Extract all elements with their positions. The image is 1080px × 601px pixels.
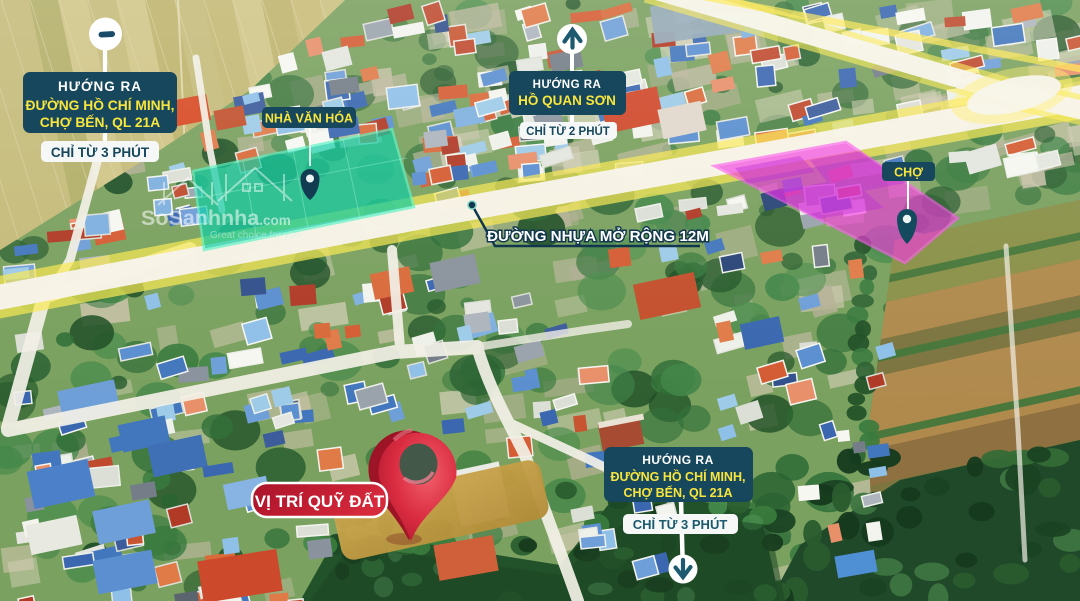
svg-text:CHỢ: CHỢ bbox=[894, 166, 923, 180]
svg-text:CHỈ TỪ 2 PHÚT: CHỈ TỪ 2 PHÚT bbox=[526, 125, 610, 138]
svg-text:CHỢ BẾN, QL 21A: CHỢ BẾN, QL 21A bbox=[623, 485, 732, 500]
svg-text:NHÀ VĂN HÓA: NHÀ VĂN HÓA bbox=[265, 111, 353, 126]
svg-text:ĐƯỜNG HỒ CHÍ MINH,: ĐƯỜNG HỒ CHÍ MINH, bbox=[26, 96, 175, 113]
svg-text:HƯỚNG RA: HƯỚNG RA bbox=[58, 79, 142, 94]
svg-text:VỊ TRÍ QUỸ ĐẤT: VỊ TRÍ QUỸ ĐẤT bbox=[255, 491, 385, 511]
svg-text:ĐƯỜNG HỒ CHÍ MINH,: ĐƯỜNG HỒ CHÍ MINH, bbox=[611, 469, 746, 484]
svg-text:HƯỚNG RA: HƯỚNG RA bbox=[642, 452, 714, 467]
svg-text:Great choice for you: Great choice for you bbox=[210, 230, 300, 241]
svg-text:ĐƯỜNG NHỰA MỞ RỘNG 12M: ĐƯỜNG NHỰA MỞ RỘNG 12M bbox=[487, 227, 709, 245]
svg-text:CHỢ BẾN, QL 21A: CHỢ BẾN, QL 21A bbox=[40, 114, 160, 130]
svg-text:HỒ QUAN SƠN: HỒ QUAN SƠN bbox=[518, 93, 616, 108]
svg-text:CHỈ TỪ 3 PHÚT: CHỈ TỪ 3 PHÚT bbox=[51, 145, 150, 160]
svg-text:HƯỚNG RA: HƯỚNG RA bbox=[533, 78, 602, 91]
svg-text:CHỈ TỪ 3 PHÚT: CHỈ TỪ 3 PHÚT bbox=[633, 517, 728, 532]
